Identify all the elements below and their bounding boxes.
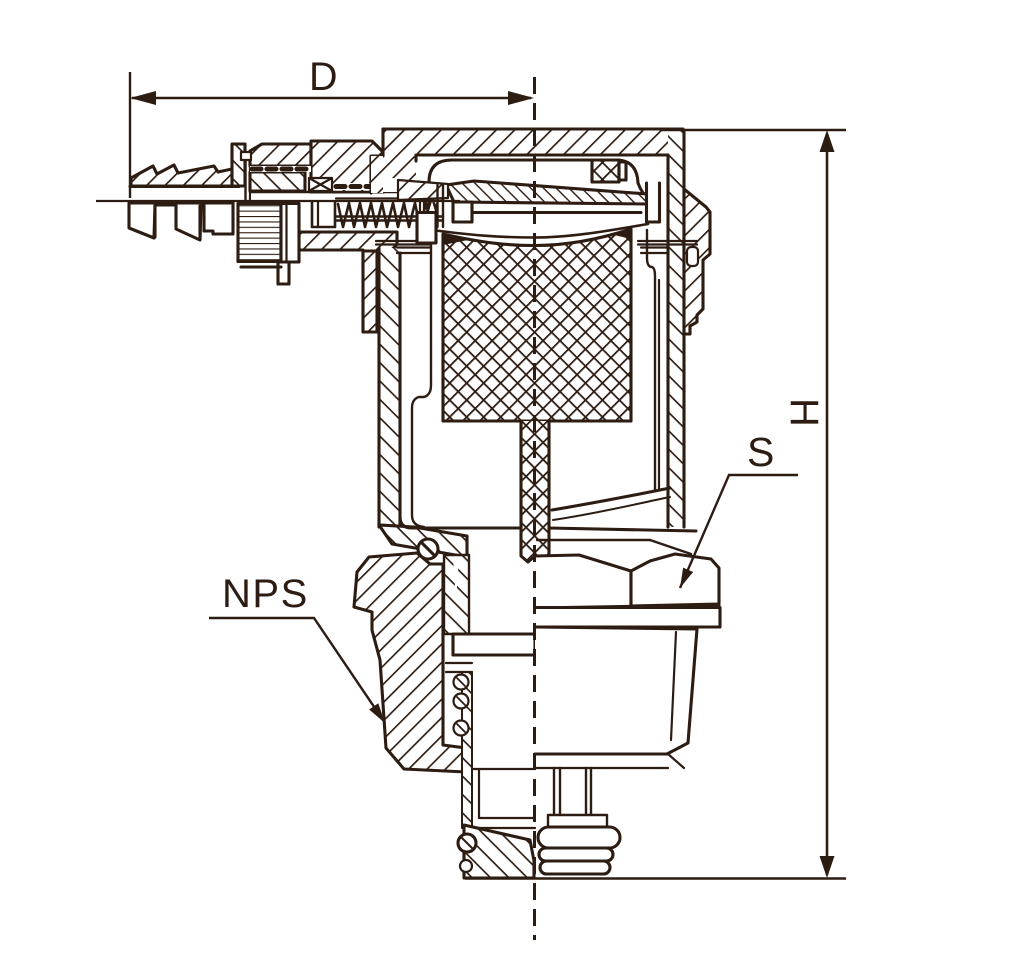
- svg-text:NPS: NPS: [222, 572, 309, 616]
- svg-text:D: D: [309, 55, 338, 99]
- svg-text:H: H: [782, 398, 826, 427]
- svg-text:S: S: [747, 429, 774, 475]
